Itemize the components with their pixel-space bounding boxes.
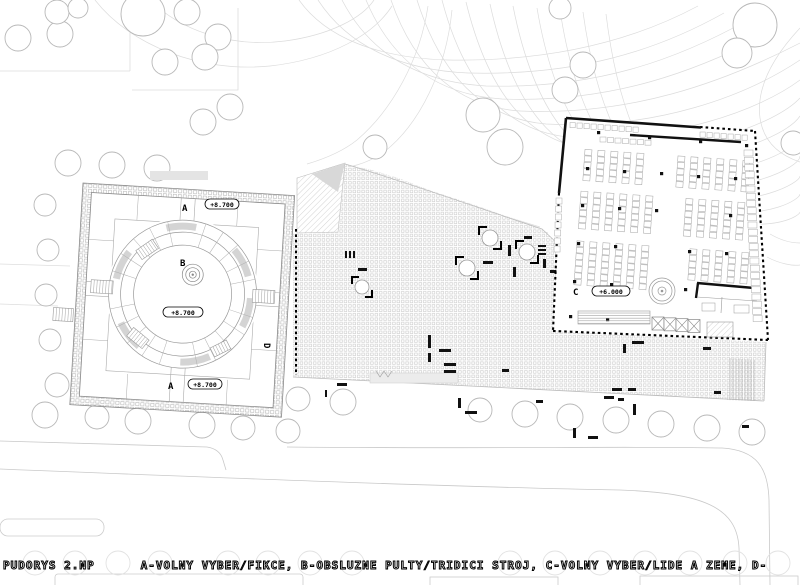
- shelf-box: [579, 217, 586, 223]
- tree-icon: [174, 0, 200, 25]
- bench-marker: [337, 383, 347, 386]
- shelf-box: [607, 193, 614, 199]
- wall-shelf: [630, 139, 636, 144]
- shelf-box: [594, 192, 601, 198]
- wall-shelf: [615, 138, 621, 143]
- tree-icon: [781, 131, 800, 155]
- shelf-box: [703, 170, 710, 176]
- wall-shelf: [577, 123, 582, 128]
- shelf-box: [576, 247, 583, 253]
- shelf-box: [575, 260, 582, 266]
- tree-icon: [190, 109, 216, 135]
- contour-line: [767, 257, 800, 265]
- shelf-box: [588, 261, 595, 267]
- wall-shelf: [700, 132, 705, 137]
- plaza-tree-icon: [459, 260, 475, 276]
- bench-marker: [573, 428, 576, 438]
- bench-marker: [628, 388, 636, 391]
- shelf-box: [740, 272, 747, 278]
- elevation-value-mid: +8.700: [171, 309, 195, 317]
- column-marker: [648, 136, 651, 139]
- shelf-box: [592, 218, 599, 224]
- contour-line: [299, 0, 698, 60]
- shelf-box: [623, 159, 630, 165]
- shelf-box: [710, 219, 717, 225]
- column-marker: [655, 209, 658, 212]
- shelf-box: [619, 200, 626, 206]
- shelf-box: [639, 277, 646, 283]
- corridor-wall: [194, 199, 195, 221]
- tree-icon: [55, 150, 81, 176]
- shelf-box: [628, 251, 635, 257]
- tree-icon: [85, 405, 109, 429]
- zone-label-a-bottom: A: [168, 382, 174, 392]
- shelf-box: [624, 152, 631, 158]
- tree-icon: [47, 21, 73, 47]
- shelf-box: [688, 274, 695, 280]
- shelf-box: [626, 276, 633, 282]
- shelf-box: [630, 227, 637, 233]
- tree-icon: [231, 416, 255, 440]
- wall-shelf: [753, 308, 762, 314]
- tree-icon: [468, 398, 492, 422]
- column-marker: [577, 242, 580, 245]
- shelf-box: [727, 277, 734, 283]
- bench-marker: [428, 335, 431, 348]
- shelf-box: [631, 220, 638, 226]
- road-line: [0, 264, 70, 266]
- shelf-box: [697, 219, 704, 225]
- zone-label-b: B: [180, 259, 186, 269]
- bench-marker: [502, 369, 509, 372]
- wall-shelf: [645, 140, 651, 145]
- tree-icon: [217, 94, 243, 120]
- wall-shelf: [748, 229, 757, 235]
- wall-shelf: [555, 222, 561, 228]
- site-plan-sheet: A +8.700 B +8.700 A +8.700 D C +6.000 PU…: [0, 0, 800, 585]
- wall-shelf: [556, 198, 562, 204]
- bench-marker: [353, 251, 355, 258]
- shelf-box: [636, 166, 643, 172]
- tree-icon: [276, 419, 300, 443]
- shelf-box: [640, 265, 647, 271]
- shelf-box: [610, 164, 617, 170]
- wall-shelf: [633, 127, 638, 132]
- shelf-box: [600, 275, 607, 281]
- tree-icon: [570, 52, 596, 78]
- shelf-box: [646, 196, 653, 202]
- shelf-box: [591, 224, 598, 230]
- tree-icon: [603, 407, 629, 433]
- partition-wall: [83, 339, 108, 340]
- shelf-box: [729, 166, 736, 172]
- bench-marker: [325, 390, 327, 397]
- wall-shelf: [752, 301, 761, 307]
- shelf-box: [715, 263, 722, 269]
- shelf-box: [714, 276, 721, 282]
- shelf-box: [715, 184, 722, 190]
- shelf-box: [641, 252, 648, 258]
- wall-shelf: [570, 123, 575, 128]
- shelf-box: [715, 178, 722, 184]
- building-c-hall: [553, 117, 768, 340]
- wall-shelf: [751, 272, 760, 278]
- bench-marker: [524, 236, 532, 239]
- hatch-box: [707, 322, 733, 337]
- shelf-box: [710, 226, 717, 232]
- shelf-box: [592, 211, 599, 217]
- shelf-box: [620, 194, 627, 200]
- bench-marker: [428, 353, 431, 362]
- shelf-box: [717, 159, 724, 165]
- wall-shelf: [623, 139, 629, 144]
- shelf-box: [702, 256, 709, 262]
- wall-shelf: [555, 230, 561, 236]
- shelf-box: [701, 275, 708, 281]
- shelf-box: [741, 259, 748, 265]
- shelf-box: [699, 199, 706, 205]
- shelf-box: [698, 212, 705, 218]
- shelf-box: [702, 183, 709, 189]
- shelf-box: [725, 201, 732, 207]
- shelf-box: [585, 149, 592, 155]
- tree-icon: [648, 411, 674, 437]
- shelf-box: [604, 225, 611, 231]
- shelf-box: [642, 245, 649, 251]
- wall-shelf: [591, 124, 596, 129]
- bench-marker: [543, 259, 546, 268]
- shelf-box: [723, 227, 730, 233]
- spiral-stair-center: [661, 290, 664, 293]
- bench-marker: [618, 398, 624, 401]
- shelf-box: [737, 208, 744, 214]
- shelf-box: [730, 160, 737, 166]
- shelf-box: [724, 208, 731, 214]
- shelf-box: [588, 267, 595, 273]
- shelf-box: [632, 208, 639, 214]
- shelf-box: [606, 206, 613, 212]
- shelf-box: [629, 244, 636, 250]
- zone-label-c: C: [573, 288, 578, 298]
- tree-icon: [99, 152, 125, 178]
- bench-marker: [633, 404, 636, 415]
- column-marker: [618, 207, 621, 210]
- zone-label-a-top: A: [182, 204, 188, 214]
- tree-icon: [35, 284, 57, 306]
- shelf-box: [701, 269, 708, 275]
- north-canopy: [150, 171, 208, 180]
- column-marker: [660, 172, 663, 175]
- wall-shelf: [746, 179, 755, 185]
- shelf-box: [711, 207, 718, 213]
- shelf-box: [611, 151, 618, 157]
- stair-stripes: [727, 358, 756, 401]
- wall-shelf: [735, 135, 740, 140]
- bench-marker: [536, 400, 543, 403]
- wall-shelf: [626, 127, 631, 132]
- contour-line: [318, 0, 724, 73]
- tree-icon: [552, 77, 578, 103]
- shelf-box: [686, 198, 693, 204]
- rotunda-floor: [102, 214, 263, 375]
- shelf-box: [645, 208, 652, 214]
- shelf-box: [622, 178, 629, 184]
- shelf-box: [716, 251, 723, 257]
- wall-shelf: [619, 126, 624, 131]
- column-marker: [586, 167, 589, 170]
- elevation-pill-c: +6.000: [592, 286, 630, 296]
- shelf-box: [741, 265, 748, 271]
- legend-caption: PUDORYS 2.NP A-VOLNY VYBER/FIKCE, B-OBSL…: [3, 540, 767, 585]
- bench-marker: [345, 251, 347, 258]
- tree-icon: [5, 25, 31, 51]
- shelf-box: [637, 153, 644, 159]
- shelf-box: [689, 255, 696, 261]
- shelf-box: [644, 221, 651, 227]
- column-marker: [569, 315, 572, 318]
- tree-icon: [45, 0, 69, 24]
- shelf-box: [677, 162, 684, 168]
- column-marker: [623, 170, 626, 173]
- tree-icon: [363, 135, 387, 159]
- road-line: [207, 447, 226, 470]
- bench-marker: [604, 396, 614, 399]
- shelf-box: [606, 199, 613, 205]
- wall-shelf: [752, 294, 761, 300]
- shelf-box: [593, 205, 600, 211]
- shelf-box: [633, 195, 640, 201]
- corridor-wall: [256, 305, 279, 306]
- shelf-box: [736, 221, 743, 227]
- shelf-box: [643, 228, 650, 234]
- elevation-pill-bottom: +8.700: [188, 379, 222, 389]
- shelf-box: [596, 169, 603, 175]
- shelf-box: [703, 250, 710, 256]
- shelf-box: [691, 157, 698, 163]
- shelf-box: [632, 201, 639, 207]
- column-marker: [745, 144, 748, 147]
- bench-marker: [349, 251, 351, 258]
- shelf-box: [728, 258, 735, 264]
- shelf-box: [574, 273, 581, 279]
- tree-icon: [192, 44, 218, 70]
- column-marker: [688, 250, 691, 253]
- wall-shelf: [612, 126, 617, 131]
- shelf-box: [736, 228, 743, 234]
- tree-icon: [34, 194, 56, 216]
- partition-wall: [137, 195, 138, 220]
- partition-wall: [257, 249, 282, 250]
- tree-icon: [549, 0, 571, 19]
- column-marker: [614, 245, 617, 248]
- shelf-box: [636, 159, 643, 165]
- shelf-box: [704, 158, 711, 164]
- tree-icon: [32, 402, 58, 428]
- shelf-box: [615, 256, 622, 262]
- shelf-box: [716, 165, 723, 171]
- shelf-box: [644, 215, 651, 221]
- partition-wall: [251, 349, 276, 350]
- bench-marker: [588, 436, 598, 439]
- shelf-box: [742, 252, 749, 258]
- wall-shelf: [742, 135, 747, 140]
- wall-shelf: [744, 157, 753, 163]
- column-marker: [684, 288, 687, 291]
- contour-line: [342, 0, 748, 86]
- shelf-box: [683, 230, 690, 236]
- elevation-pill-top: +8.700: [205, 199, 239, 209]
- bench-marker: [444, 370, 456, 373]
- plaza-tree-icon: [519, 244, 535, 260]
- shelf-box: [690, 170, 697, 176]
- wall-shelf: [598, 125, 603, 130]
- shelf-box: [576, 254, 583, 260]
- shelf-box: [587, 280, 594, 286]
- wall-shelf: [744, 150, 753, 156]
- shelf-box: [618, 213, 625, 219]
- bench-marker: [612, 388, 622, 391]
- tree-icon: [739, 419, 765, 445]
- wall-shelf: [747, 200, 756, 206]
- shelf-box: [627, 270, 634, 276]
- shelf-box: [581, 191, 588, 197]
- shelf-box: [690, 163, 697, 169]
- shelf-box: [727, 271, 734, 277]
- tree-icon: [557, 404, 583, 430]
- shelf-box: [722, 233, 729, 239]
- shelf-box: [689, 262, 696, 268]
- bench-marker: [623, 344, 626, 353]
- legend-line-1: PUDORYS 2.NP A-VOLNY VYBER/FIKCE, B-OBSL…: [3, 561, 767, 572]
- shelf-box: [587, 274, 594, 280]
- wall-shelf: [555, 214, 561, 220]
- wall-shelf: [751, 280, 760, 286]
- shelf-box: [597, 163, 604, 169]
- wall-shelf: [584, 124, 589, 129]
- bench-marker: [439, 349, 451, 352]
- zone-label-d: D: [261, 343, 271, 349]
- shelf-box: [609, 170, 616, 176]
- shelf-box: [729, 251, 736, 257]
- wall-shelf: [600, 137, 606, 142]
- shelf-box: [578, 223, 585, 229]
- wall-shelf: [750, 265, 759, 271]
- tree-icon: [694, 415, 720, 441]
- wall-shelf: [749, 244, 758, 250]
- shelf-box: [618, 219, 625, 225]
- bench-marker: [538, 253, 546, 255]
- shelf-box: [723, 220, 730, 226]
- corridor-wall: [85, 295, 108, 296]
- shelf-box: [645, 202, 652, 208]
- bench-marker: [632, 341, 644, 344]
- shelf-box: [702, 262, 709, 268]
- ramp-band: [370, 373, 458, 383]
- floor-plan-drawing: A +8.700 B +8.700 A +8.700 D C +6.000: [0, 0, 800, 585]
- shelf-box: [639, 284, 646, 290]
- stair-icon: [252, 289, 275, 303]
- tree-icon: [125, 408, 151, 434]
- tree-icon: [487, 129, 523, 165]
- shelf-box: [609, 177, 616, 183]
- wall-shelf: [638, 140, 644, 145]
- bench-marker: [538, 245, 546, 247]
- tree-icon: [152, 49, 178, 75]
- shelf-box: [735, 234, 742, 240]
- shelf-box: [614, 269, 621, 275]
- shelf-box: [596, 176, 603, 182]
- shelf-box: [641, 258, 648, 264]
- shelf-box: [584, 156, 591, 162]
- wall-shelf: [747, 208, 756, 214]
- shelf-box: [676, 175, 683, 181]
- tree-icon: [330, 389, 356, 415]
- column-marker: [725, 252, 728, 255]
- wall-shelf: [748, 222, 757, 228]
- bench-marker: [742, 425, 749, 428]
- elevation-pill-mid: +8.700: [163, 307, 203, 317]
- shelf-box: [615, 250, 622, 256]
- shelf-box: [688, 268, 695, 274]
- bench-marker: [358, 268, 367, 271]
- wall-shelf: [556, 206, 562, 212]
- shelf-box: [579, 210, 586, 216]
- shelf-box: [605, 212, 612, 218]
- partition-wall: [226, 380, 227, 405]
- escalator-stripes: [578, 311, 650, 324]
- tree-icon: [286, 387, 310, 411]
- shelf-box: [678, 156, 685, 162]
- shelf-box: [697, 225, 704, 231]
- wall-shelf: [750, 258, 759, 264]
- column-marker: [734, 177, 737, 180]
- plaza-tree-icon: [355, 280, 369, 294]
- bench-marker: [714, 391, 721, 394]
- wall-shelf: [728, 134, 733, 139]
- column-marker: [697, 175, 700, 178]
- shelf-box: [702, 177, 709, 183]
- stair-icon: [91, 280, 114, 294]
- column-marker: [581, 204, 584, 207]
- bench-marker: [483, 261, 493, 264]
- shelf-box: [601, 268, 608, 274]
- contour-line: [332, 10, 452, 168]
- bench-marker: [465, 411, 477, 414]
- shelf-box: [593, 198, 600, 204]
- wall-shelf: [605, 125, 610, 130]
- bench-marker: [458, 398, 461, 408]
- wall-shelf: [752, 287, 761, 293]
- shelf-box: [737, 215, 744, 221]
- wall-shelf: [749, 236, 758, 242]
- tree-icon: [512, 401, 538, 427]
- wall-shelf: [748, 215, 757, 221]
- shelf-box: [684, 218, 691, 224]
- shelf-box: [590, 242, 597, 248]
- wall-shelf: [745, 164, 754, 170]
- shelf-box: [575, 266, 582, 272]
- shelf-box: [715, 257, 722, 263]
- shelf-box: [603, 243, 610, 249]
- shelf-box: [728, 185, 735, 191]
- tree-icon: [45, 373, 69, 397]
- plaza-tree-icon: [482, 230, 498, 246]
- shelf-box: [628, 257, 635, 263]
- tree-icon: [189, 412, 215, 438]
- elevation-value-c: +6.000: [599, 288, 623, 296]
- wall-shelf: [714, 133, 719, 138]
- shelf-box: [635, 179, 642, 185]
